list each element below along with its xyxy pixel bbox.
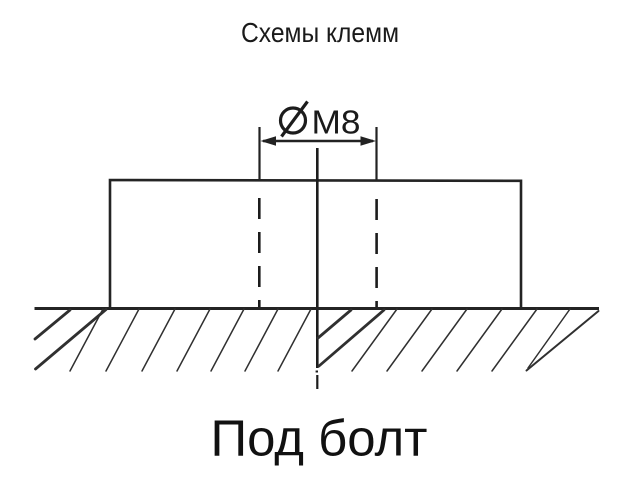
svg-text:Под болт: Под болт — [211, 410, 428, 467]
svg-text:M8: M8 — [312, 105, 361, 142]
svg-text:Схемы клемм: Схемы клемм — [241, 17, 399, 48]
